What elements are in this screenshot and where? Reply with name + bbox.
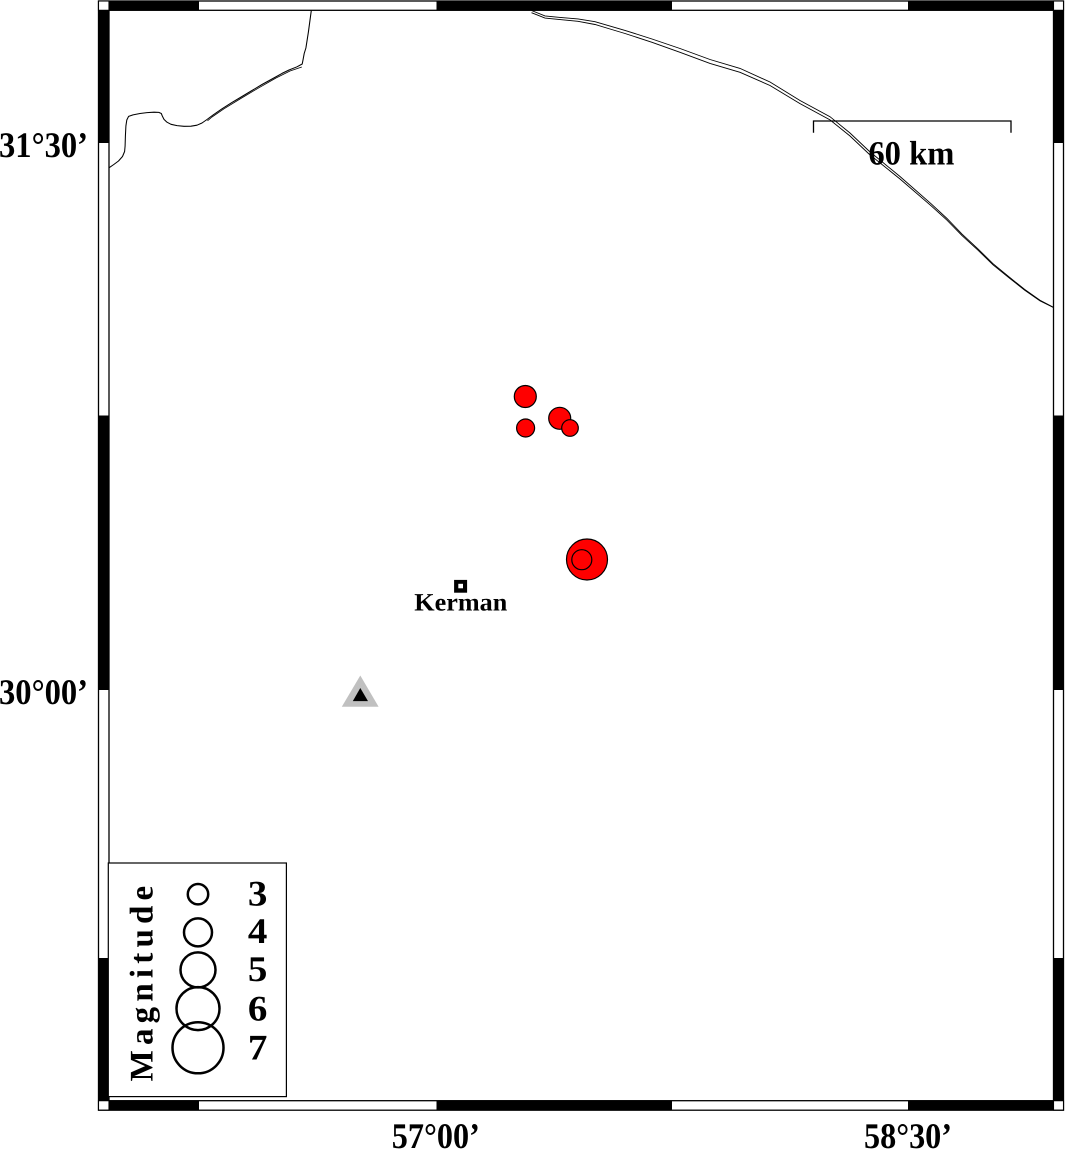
svg-text:31°30’: 31°30’ (0, 125, 88, 165)
svg-text:Magnitude: Magnitude (125, 881, 161, 1082)
svg-text:7: 7 (248, 1028, 268, 1068)
svg-text:3: 3 (248, 874, 268, 914)
svg-text:58°30’: 58°30’ (864, 1116, 952, 1149)
svg-text:Kerman: Kerman (414, 590, 507, 617)
svg-text:60 km: 60 km (868, 136, 954, 173)
svg-text:57°00’: 57°00’ (392, 1116, 480, 1149)
svg-text:6: 6 (248, 988, 268, 1028)
svg-text:5: 5 (248, 949, 268, 989)
svg-text:4: 4 (248, 911, 268, 951)
svg-text:30°00’: 30°00’ (0, 672, 88, 712)
